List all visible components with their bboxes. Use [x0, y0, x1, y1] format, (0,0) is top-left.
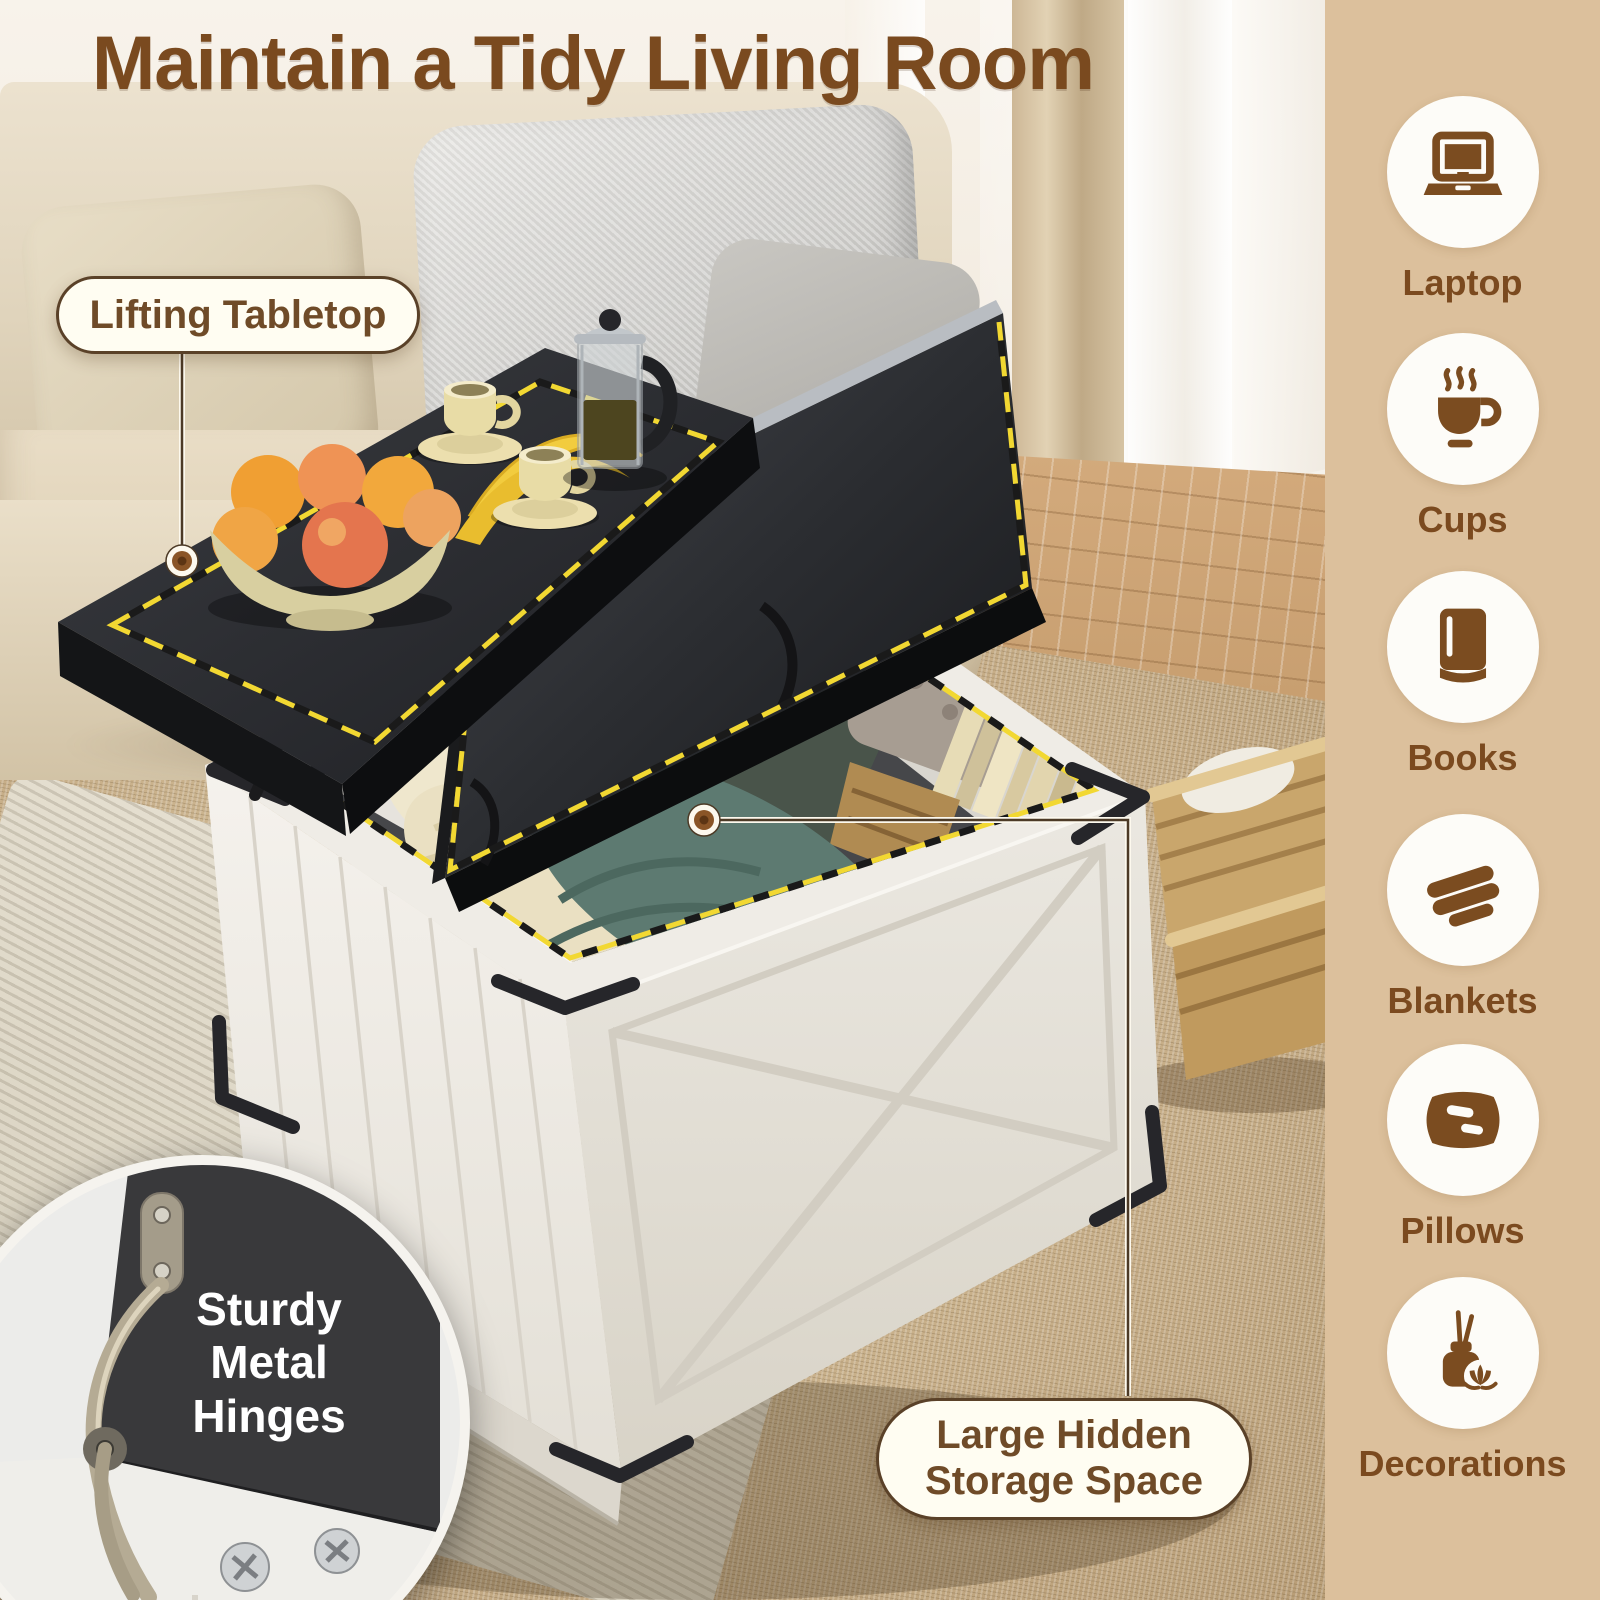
sidebar-label: Cups	[1418, 499, 1508, 541]
sidebar-label: Decorations	[1358, 1443, 1566, 1485]
lifting-tabletop-leader	[166, 354, 198, 577]
sidebar-item-blankets: Blankets	[1325, 814, 1600, 1022]
sidebar-item-decorations: Decorations	[1325, 1277, 1600, 1485]
folded-blanket-icon	[1415, 842, 1511, 938]
feature-sidebar: Laptop Cups	[1325, 0, 1600, 1600]
page-title: Maintain a Tidy Living Room	[92, 26, 1332, 102]
sidebar-item-cups: Cups	[1325, 333, 1600, 541]
hinge-detail-inset: Sturdy Metal Hinges	[0, 1155, 470, 1600]
sidebar-label: Laptop	[1403, 262, 1523, 304]
callout-hidden-storage: Large Hidden Storage Space	[876, 1398, 1252, 1520]
sidebar-item-books: Books	[1325, 571, 1600, 779]
callout-hidden-storage-label: Large Hidden Storage Space	[899, 1413, 1229, 1504]
coffee-cup-icon	[1415, 361, 1511, 457]
sidebar-label: Books	[1407, 737, 1517, 779]
book-icon	[1415, 599, 1511, 695]
product-infographic: Maintain a Tidy Living Room Lifting Tabl…	[0, 0, 1600, 1600]
callout-lifting-tabletop: Lifting Tabletop	[56, 276, 420, 354]
sidebar-item-pillows: Pillows	[1325, 1044, 1600, 1252]
reed-diffuser-icon	[1415, 1305, 1511, 1401]
sidebar-label: Pillows	[1400, 1210, 1524, 1252]
callout-lifting-tabletop-label: Lifting Tabletop	[90, 293, 387, 338]
sidebar-item-laptop: Laptop	[1325, 96, 1600, 304]
laptop-icon	[1415, 124, 1511, 220]
callout-metal-hinges: Sturdy Metal Hinges	[163, 1283, 375, 1443]
pillow-icon	[1415, 1072, 1511, 1168]
sidebar-label: Blankets	[1387, 980, 1537, 1022]
